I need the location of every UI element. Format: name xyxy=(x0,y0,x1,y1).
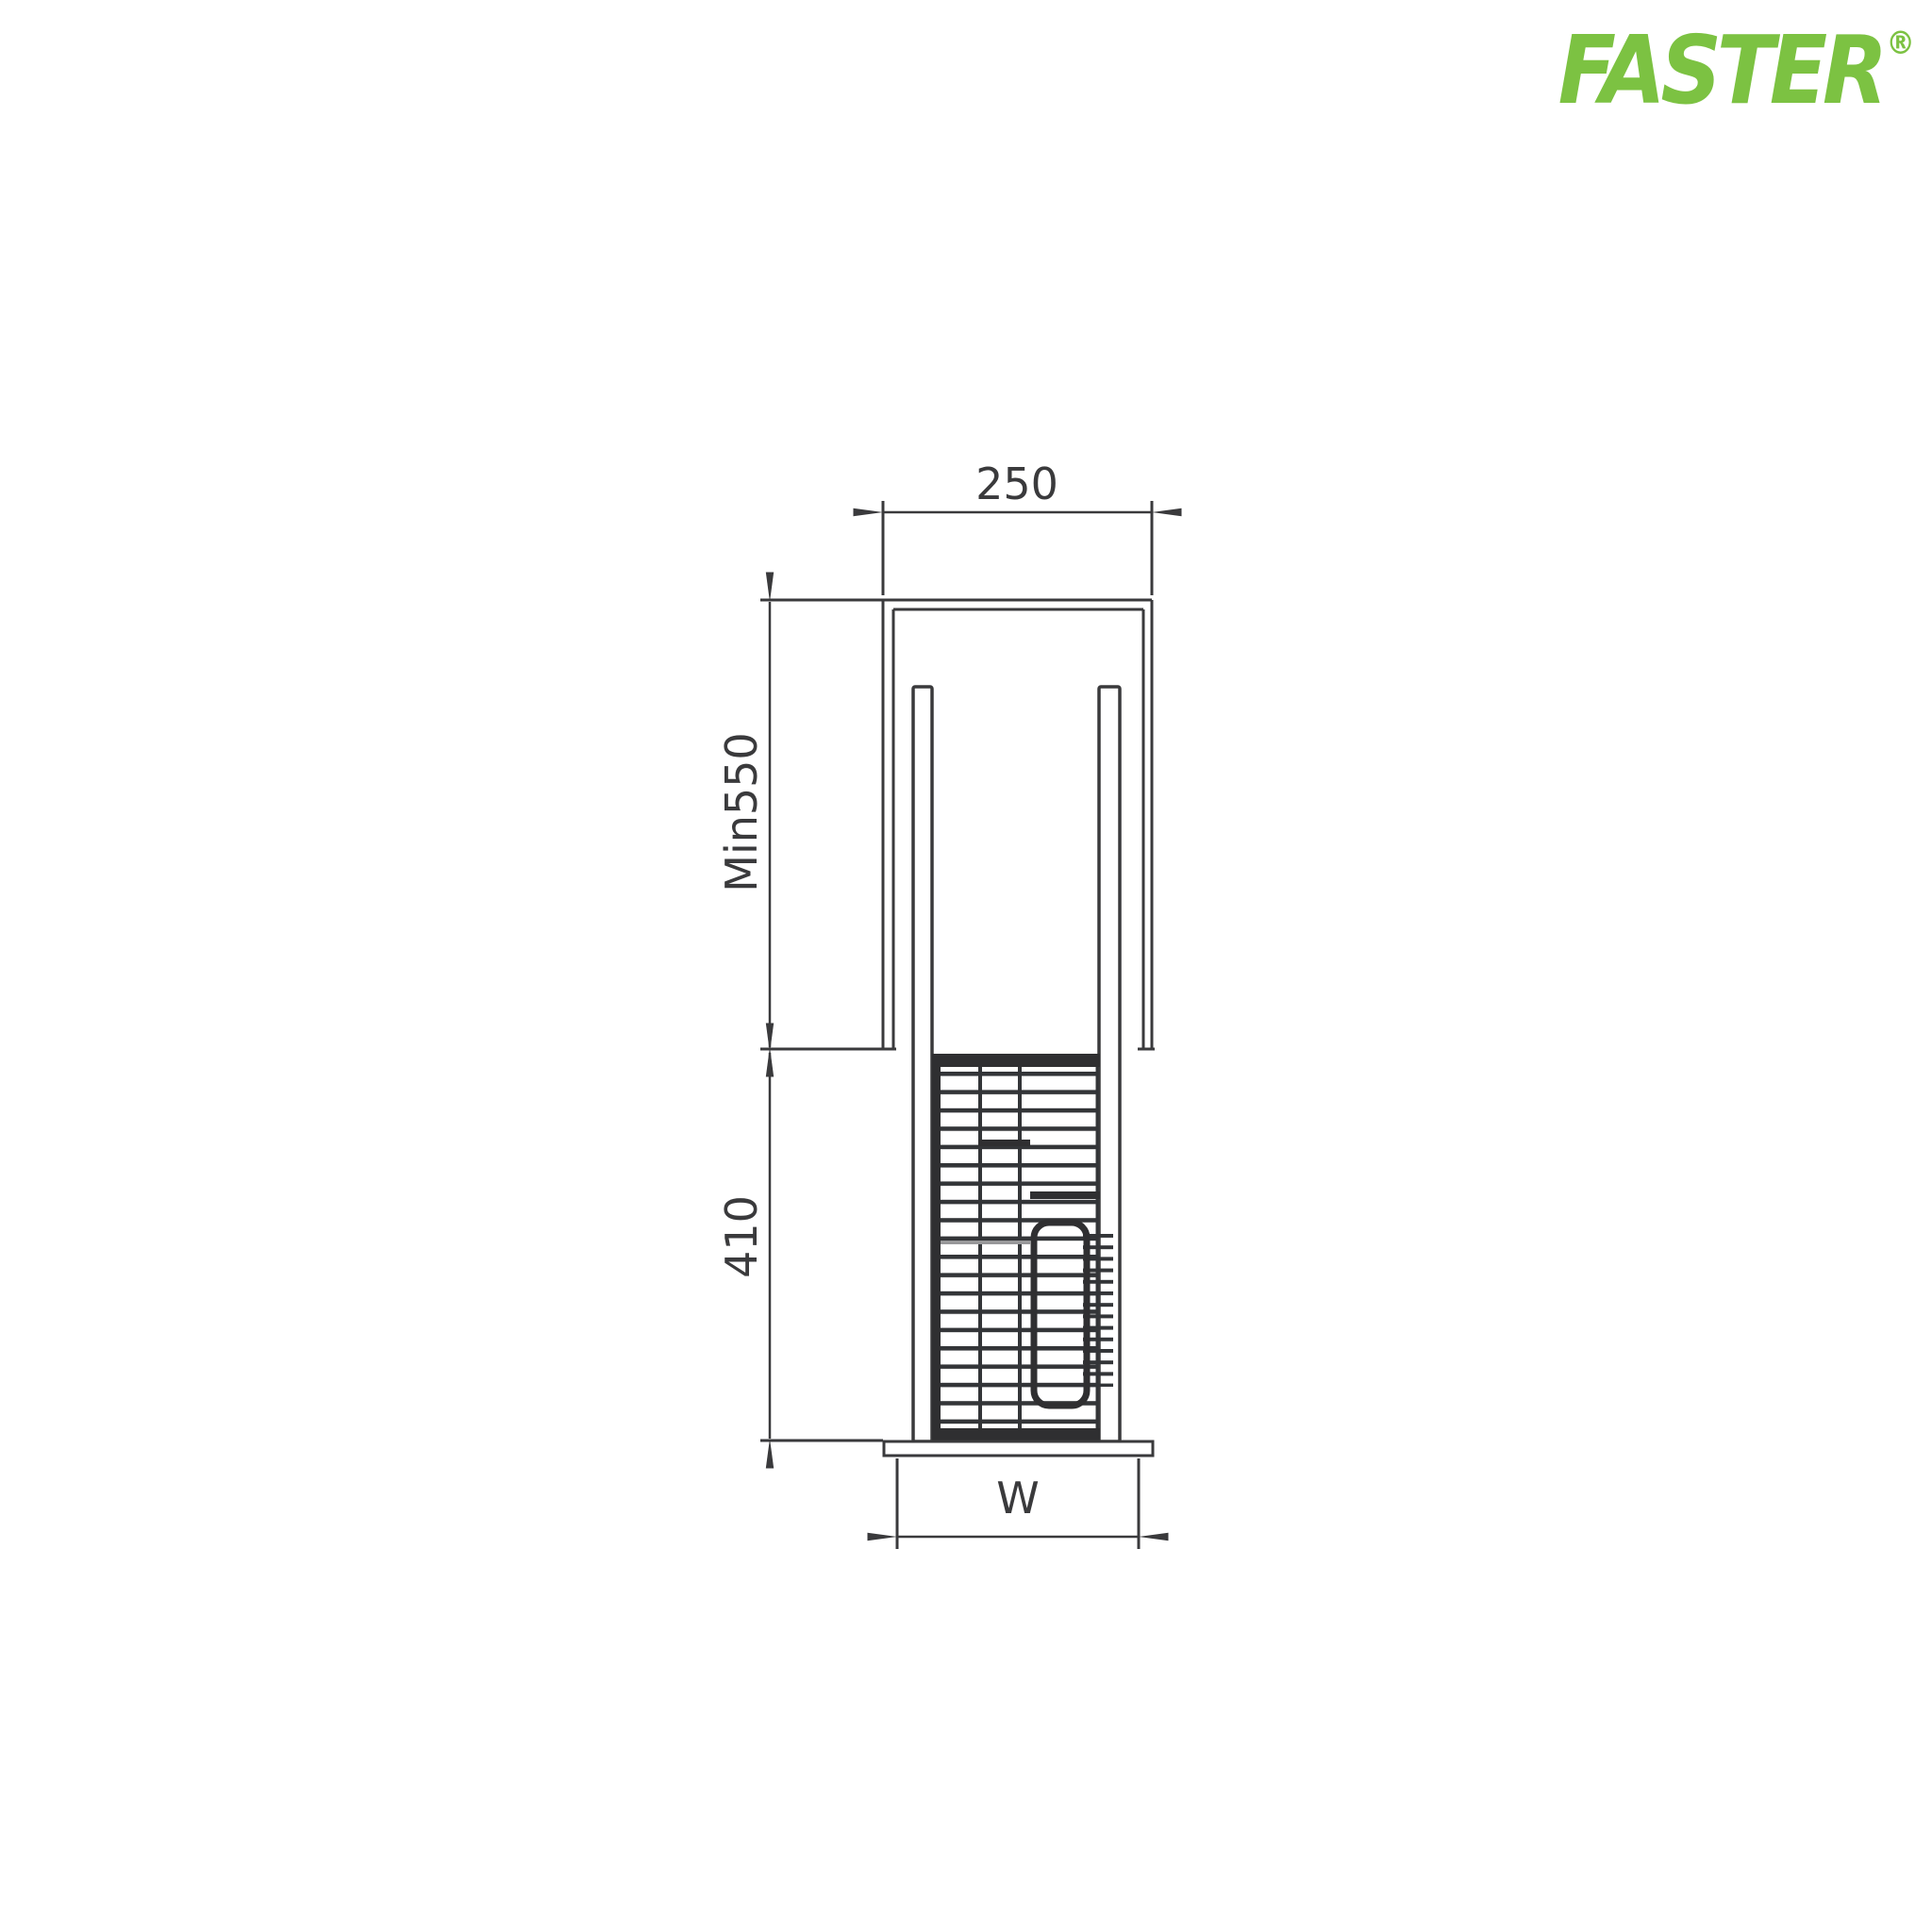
inner-rack-top-edge xyxy=(1030,1191,1100,1199)
basket-left-post xyxy=(932,1054,941,1441)
basket-shelf-edge-upper xyxy=(978,1140,1030,1146)
wire-basket xyxy=(932,1054,1113,1441)
dim-label-cabinet-min-height: Min550 xyxy=(716,732,767,891)
dim-label-base-width: W xyxy=(996,1473,1039,1524)
base-plate xyxy=(884,1441,1153,1456)
page: FASTER® xyxy=(0,0,1932,1932)
dim-label-basket-height: 410 xyxy=(716,1195,767,1278)
dim-label-cabinet-width: 250 xyxy=(975,458,1058,509)
left-rail xyxy=(913,687,932,1441)
basket-bottom-rail xyxy=(932,1428,1100,1441)
basket-top-rail xyxy=(932,1054,1100,1067)
technical-dimension-drawing: 250 Min550 410 W xyxy=(0,0,1932,1932)
